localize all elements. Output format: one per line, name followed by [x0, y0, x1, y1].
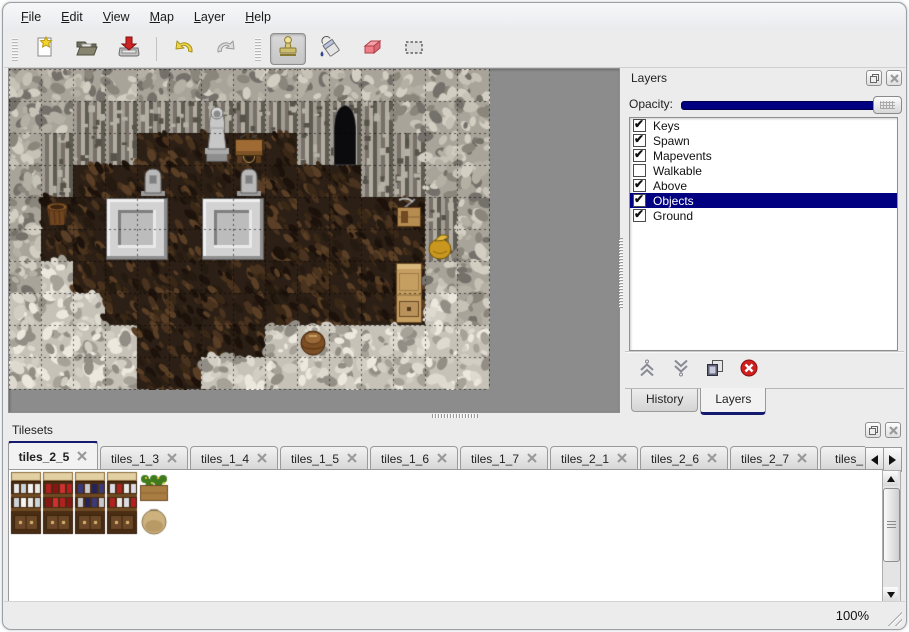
close-tab-icon[interactable] — [77, 450, 87, 464]
scrollbar-thumb[interactable] — [883, 488, 900, 562]
app-window: FileEditViewMapLayerHelp Layers Opacity:… — [2, 2, 907, 630]
layer-visibility-checkbox[interactable] — [633, 149, 646, 162]
menu-file[interactable]: File — [12, 7, 50, 27]
tileset-tab-tiles_2_5[interactable]: tiles_2_5 — [8, 441, 98, 470]
layer-visibility-checkbox[interactable] — [633, 179, 646, 192]
layer-visibility-checkbox[interactable] — [633, 164, 646, 177]
tileset-tab-tiles_2_1[interactable]: tiles_2_1 — [550, 446, 638, 470]
move-layer-down-button[interactable] — [669, 358, 693, 382]
menu-layer[interactable]: Layer — [185, 7, 234, 27]
tileset-scrollbar[interactable] — [882, 470, 901, 603]
tileset-tab-label: tiles_ — [835, 452, 863, 466]
layer-label: Above — [653, 179, 687, 193]
layer-visibility-checkbox[interactable] — [633, 134, 646, 147]
layer-visibility-checkbox[interactable] — [633, 119, 646, 132]
redo-button[interactable] — [208, 33, 244, 65]
opacity-slider-handle[interactable] — [873, 96, 902, 114]
tileset-tab-label: tiles_2_7 — [741, 452, 789, 466]
layer-list[interactable]: KeysSpawnMapeventsWalkableAboveObjectsGr… — [629, 117, 898, 351]
eraser-tool-button[interactable] — [354, 33, 390, 65]
resize-grip[interactable] — [885, 609, 902, 626]
opacity-label: Opacity: — [629, 97, 673, 111]
menu-help[interactable]: Help — [236, 7, 280, 27]
new-file-icon — [32, 34, 58, 65]
tileset-tab-tiles_2_6[interactable]: tiles_2_6 — [640, 446, 728, 470]
delete-layer-button[interactable] — [737, 358, 761, 382]
layer-label: Mapevents — [653, 149, 712, 163]
scroll-up-button[interactable] — [883, 471, 898, 486]
rect-select-tool-icon — [401, 34, 427, 65]
tileset-canvas[interactable] — [9, 470, 545, 602]
toolbar-separator — [156, 37, 157, 61]
layer-row-walkable[interactable]: Walkable — [630, 163, 897, 178]
layer-label: Ground — [653, 209, 693, 223]
tileset-tabbar: tiles_2_5tiles_1_3tiles_1_4tiles_1_5tile… — [8, 441, 865, 470]
dock-tab-history[interactable]: History — [631, 389, 698, 412]
close-tab-icon[interactable] — [527, 452, 537, 466]
stamp-tool-button[interactable] — [270, 33, 306, 65]
right-arrow-icon — [889, 455, 896, 465]
duplicate-layer-button[interactable] — [703, 358, 727, 382]
layer-label: Walkable — [653, 164, 702, 178]
close-tab-icon[interactable] — [167, 452, 177, 466]
layer-row-objects[interactable]: Objects — [630, 193, 897, 208]
layer-visibility-checkbox[interactable] — [633, 209, 646, 222]
menu-view[interactable]: View — [94, 7, 139, 27]
close-tab-icon[interactable] — [437, 452, 447, 466]
layers-dock-title: Layers — [623, 71, 866, 85]
status-bar: 100% — [4, 601, 905, 629]
tileset-tab-tiles_1_5[interactable]: tiles_1_5 — [280, 446, 368, 470]
tilesets-dock-title: Tilesets — [4, 423, 865, 437]
close-tab-icon[interactable] — [257, 452, 267, 466]
layer-row-mapevents[interactable]: Mapevents — [630, 148, 897, 163]
layer-label: Objects — [653, 194, 694, 208]
tileset-tab-tiles_1_7[interactable]: tiles_1_7 — [460, 446, 548, 470]
tileset-tab-label: tiles_2_1 — [561, 452, 609, 466]
menu-map[interactable]: Map — [141, 7, 183, 27]
tileset-tab-tiles_1_4[interactable]: tiles_1_4 — [190, 446, 278, 470]
zoom-level: 100% — [836, 608, 869, 623]
layers-dock: Layers Opacity: KeysSpawnMapeventsWalkab… — [623, 67, 906, 415]
float-dock-icon[interactable] — [866, 70, 882, 86]
map-view[interactable] — [8, 68, 620, 413]
fill-tool-icon — [317, 34, 343, 65]
opacity-slider-track[interactable] — [681, 101, 900, 110]
float-dock-icon[interactable] — [865, 422, 881, 438]
tileset-tab-label: tiles_2_5 — [19, 450, 70, 464]
close-tab-icon[interactable] — [347, 452, 357, 466]
tileset-tab-tiles_1_3[interactable]: tiles_1_3 — [100, 446, 188, 470]
map-canvas[interactable] — [9, 69, 490, 390]
tab-scroll-right-button[interactable] — [883, 447, 902, 472]
up-arrow-icon — [887, 476, 895, 482]
toolbar-drag-handle[interactable] — [255, 37, 261, 61]
tileset-tab-label: tiles_1_3 — [111, 452, 159, 466]
new-file-button[interactable] — [27, 33, 63, 65]
stamp-tool-icon — [275, 34, 301, 65]
layer-row-keys[interactable]: Keys — [630, 118, 897, 133]
layer-actions — [625, 352, 904, 387]
open-file-icon — [74, 34, 100, 65]
redo-icon — [213, 34, 239, 65]
move-layer-up-button[interactable] — [635, 358, 659, 382]
close-tab-icon[interactable] — [617, 452, 627, 466]
duplicate-layer-icon — [705, 358, 725, 383]
open-file-button[interactable] — [69, 33, 105, 65]
undo-icon — [171, 34, 197, 65]
toolbar — [4, 31, 905, 68]
opacity-slider[interactable] — [681, 96, 902, 112]
toolbar-drag-handle[interactable] — [12, 37, 18, 61]
tileset-tab-tiles_1_6[interactable]: tiles_1_6 — [370, 446, 458, 470]
rect-select-tool-button[interactable] — [396, 33, 432, 65]
save-file-button[interactable] — [111, 33, 147, 65]
dock-tabbar: HistoryLayers — [625, 388, 904, 415]
close-tab-icon[interactable] — [797, 452, 807, 466]
eraser-tool-icon — [359, 34, 385, 65]
tilesets-dock-titlebar: Tilesets — [4, 419, 905, 441]
undo-button[interactable] — [166, 33, 202, 65]
tileset-tab-label: tiles_1_5 — [291, 452, 339, 466]
dock-tab-layers[interactable]: Layers — [700, 388, 766, 415]
tileset-view[interactable] — [8, 469, 883, 604]
tileset-tab-label: tiles_1_4 — [201, 452, 249, 466]
tileset-tab-label: tiles_2_6 — [651, 452, 699, 466]
tileset-tab-label: tiles_1_6 — [381, 452, 429, 466]
close-dock-icon[interactable] — [885, 422, 901, 438]
menu-bar: FileEditViewMapLayerHelp — [4, 3, 905, 31]
layer-label: Keys — [653, 119, 680, 133]
layer-label: Spawn — [653, 134, 690, 148]
tileset-tab-label: tiles_1_7 — [471, 452, 519, 466]
scroll-down-button[interactable] — [883, 587, 898, 602]
left-arrow-icon — [871, 455, 878, 465]
tileset-tab-tiles_2_7[interactable]: tiles_2_7 — [730, 446, 818, 470]
layer-visibility-checkbox[interactable] — [633, 194, 646, 207]
down-arrow-icon — [887, 592, 895, 598]
close-dock-icon[interactable] — [886, 70, 902, 86]
fill-tool-button[interactable] — [312, 33, 348, 65]
delete-layer-icon — [739, 358, 759, 383]
layer-row-above[interactable]: Above — [630, 178, 897, 193]
close-tab-icon[interactable] — [707, 452, 717, 466]
move-layer-down-icon — [671, 358, 691, 383]
tileset-tab-tiles_[interactable]: tiles_ — [820, 446, 865, 470]
tilesets-dock: Tilesets tiles_2_5tiles_1_3tiles_1_4tile… — [4, 419, 905, 605]
layer-row-ground[interactable]: Ground — [630, 208, 897, 223]
layer-row-spawn[interactable]: Spawn — [630, 133, 897, 148]
move-layer-up-icon — [637, 358, 657, 383]
layers-dock-titlebar: Layers — [623, 67, 906, 89]
menu-edit[interactable]: Edit — [52, 7, 92, 27]
save-file-icon — [116, 34, 142, 65]
